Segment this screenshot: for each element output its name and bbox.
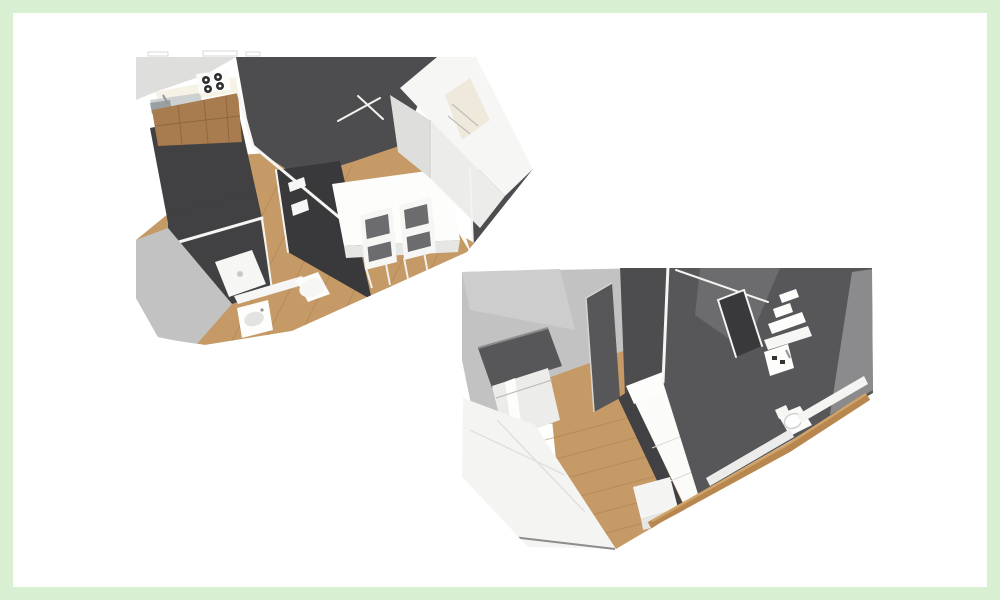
wall-top-marks (148, 51, 260, 56)
shower-drain (237, 271, 243, 277)
canvas (0, 0, 1000, 600)
floor-plan-render-2 (450, 260, 878, 556)
stove (196, 70, 231, 94)
